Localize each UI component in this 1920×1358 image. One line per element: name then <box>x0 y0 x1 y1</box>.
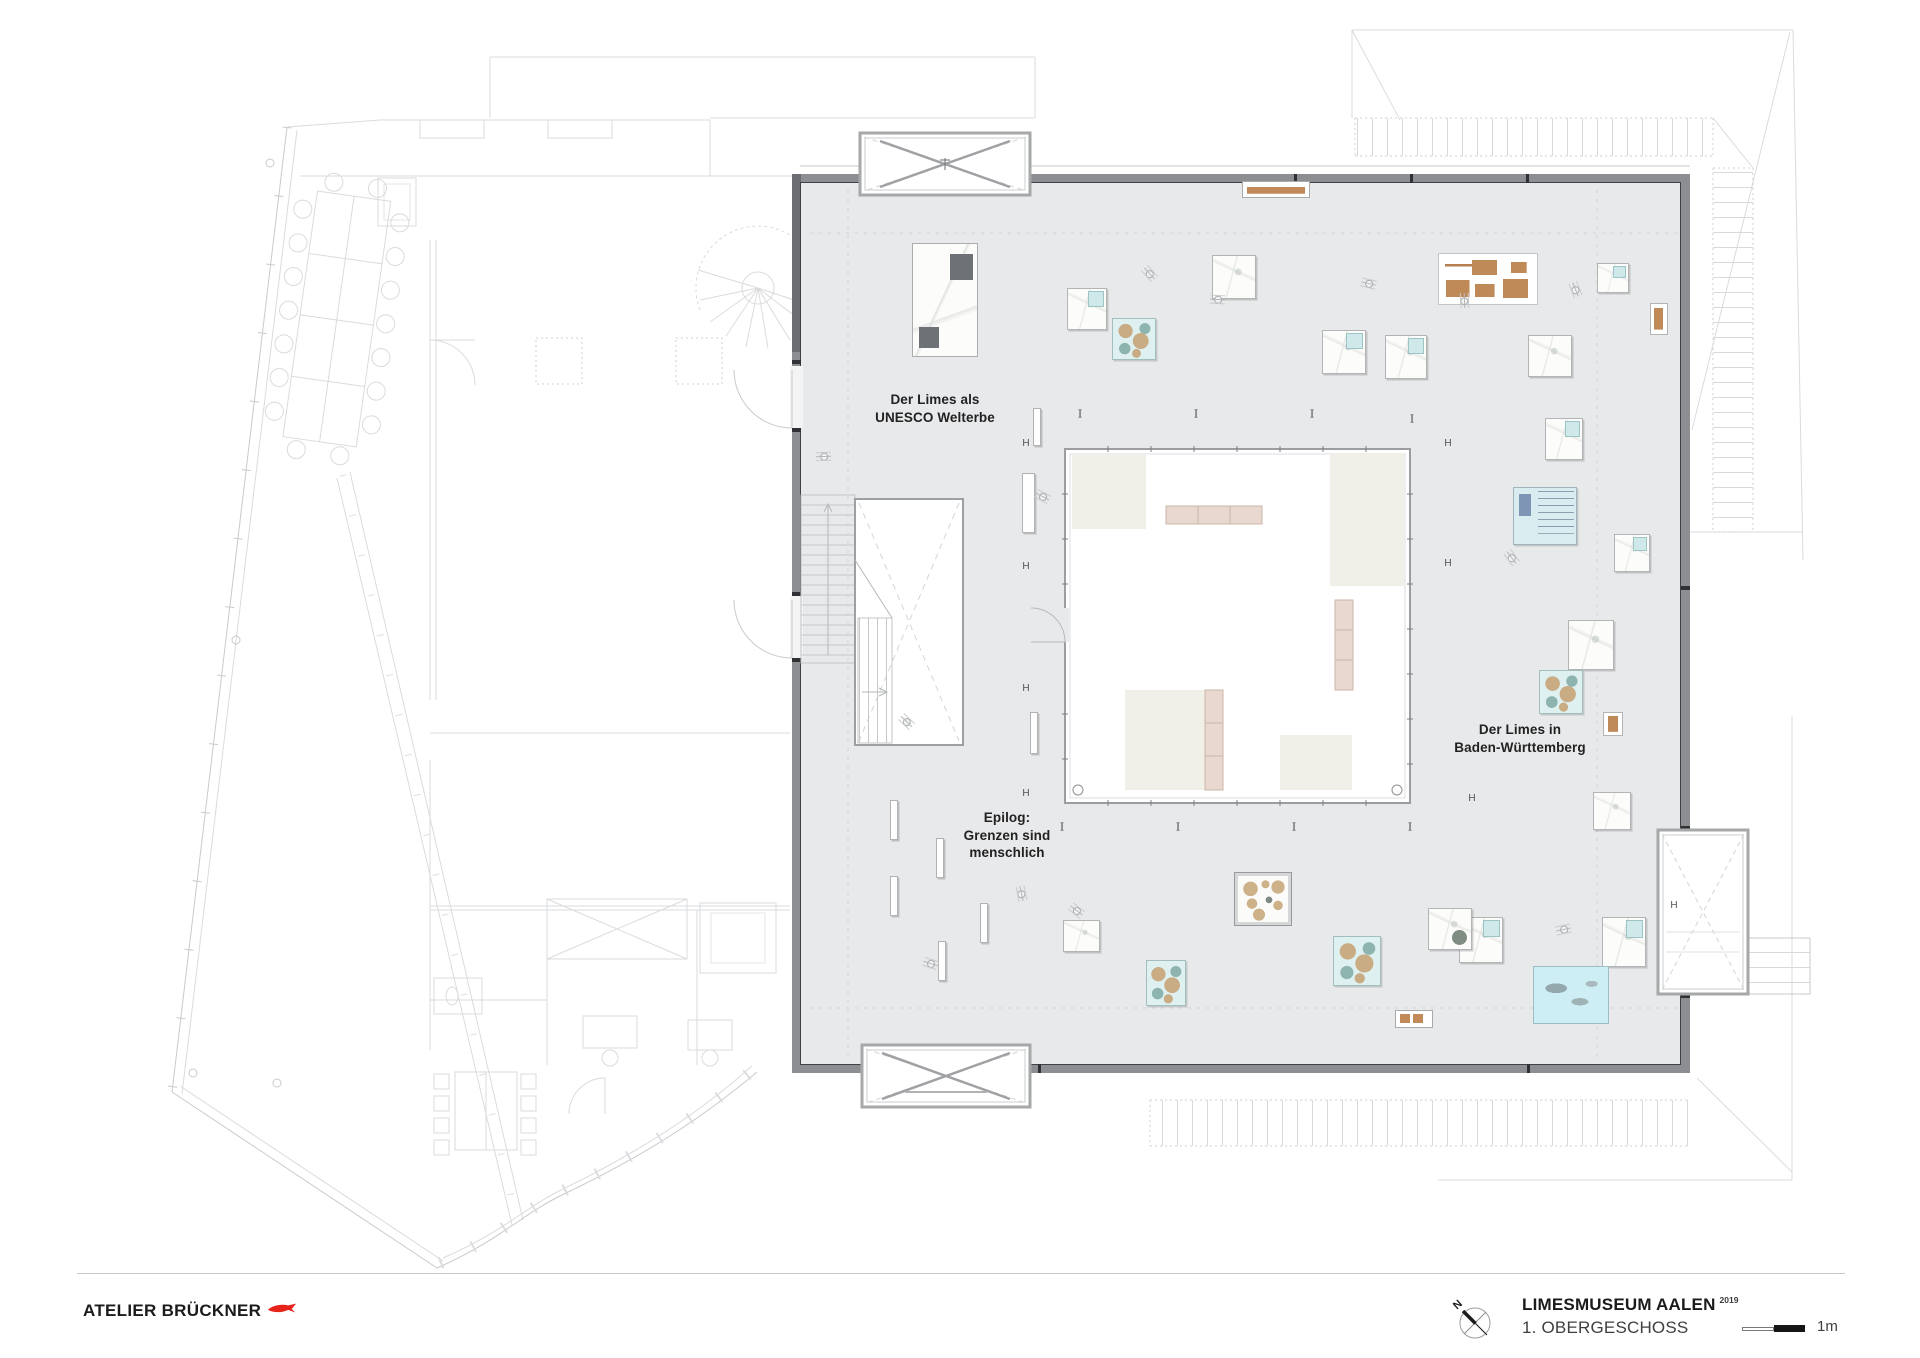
north-label: N <box>1452 1298 1465 1312</box>
floor-plan-sheet: HHHHHHHHIIIIIIIIDer Limes als UNESCO Wel… <box>0 0 1920 1358</box>
project-year: 2019 <box>1720 1295 1739 1305</box>
conference-table <box>259 168 414 469</box>
skylight-bottom <box>862 1045 1030 1107</box>
studio-brand: ATELIER BRÜCKNER <box>83 1301 297 1321</box>
scale-bar-graphic <box>1742 1324 1806 1334</box>
scale-bar-open-segment <box>1742 1327 1774 1331</box>
north-arrow-icon: N <box>1452 1297 1496 1343</box>
scale-label: 1m <box>1817 1318 1838 1335</box>
floor-title: 1. OBERGESCHOSS <box>1522 1318 1738 1338</box>
scale-bar: 1m <box>1742 1318 1838 1335</box>
skylight-top <box>860 133 1030 195</box>
title-block: LIMESMUSEUM AALEN2019 1. OBERGESCHOSS <box>1522 1295 1738 1338</box>
fish-logo-icon <box>267 1302 297 1315</box>
footer-divider <box>77 1273 1845 1274</box>
central-core <box>1031 446 1413 806</box>
elevator-shaft-right <box>1658 830 1748 994</box>
project-title: LIMESMUSEUM AALEN2019 <box>1522 1295 1738 1315</box>
studio-name: ATELIER BRÜCKNER <box>83 1301 261 1321</box>
architecture-drawing <box>0 0 1920 1358</box>
scale-bar-solid-segment <box>1774 1325 1805 1332</box>
